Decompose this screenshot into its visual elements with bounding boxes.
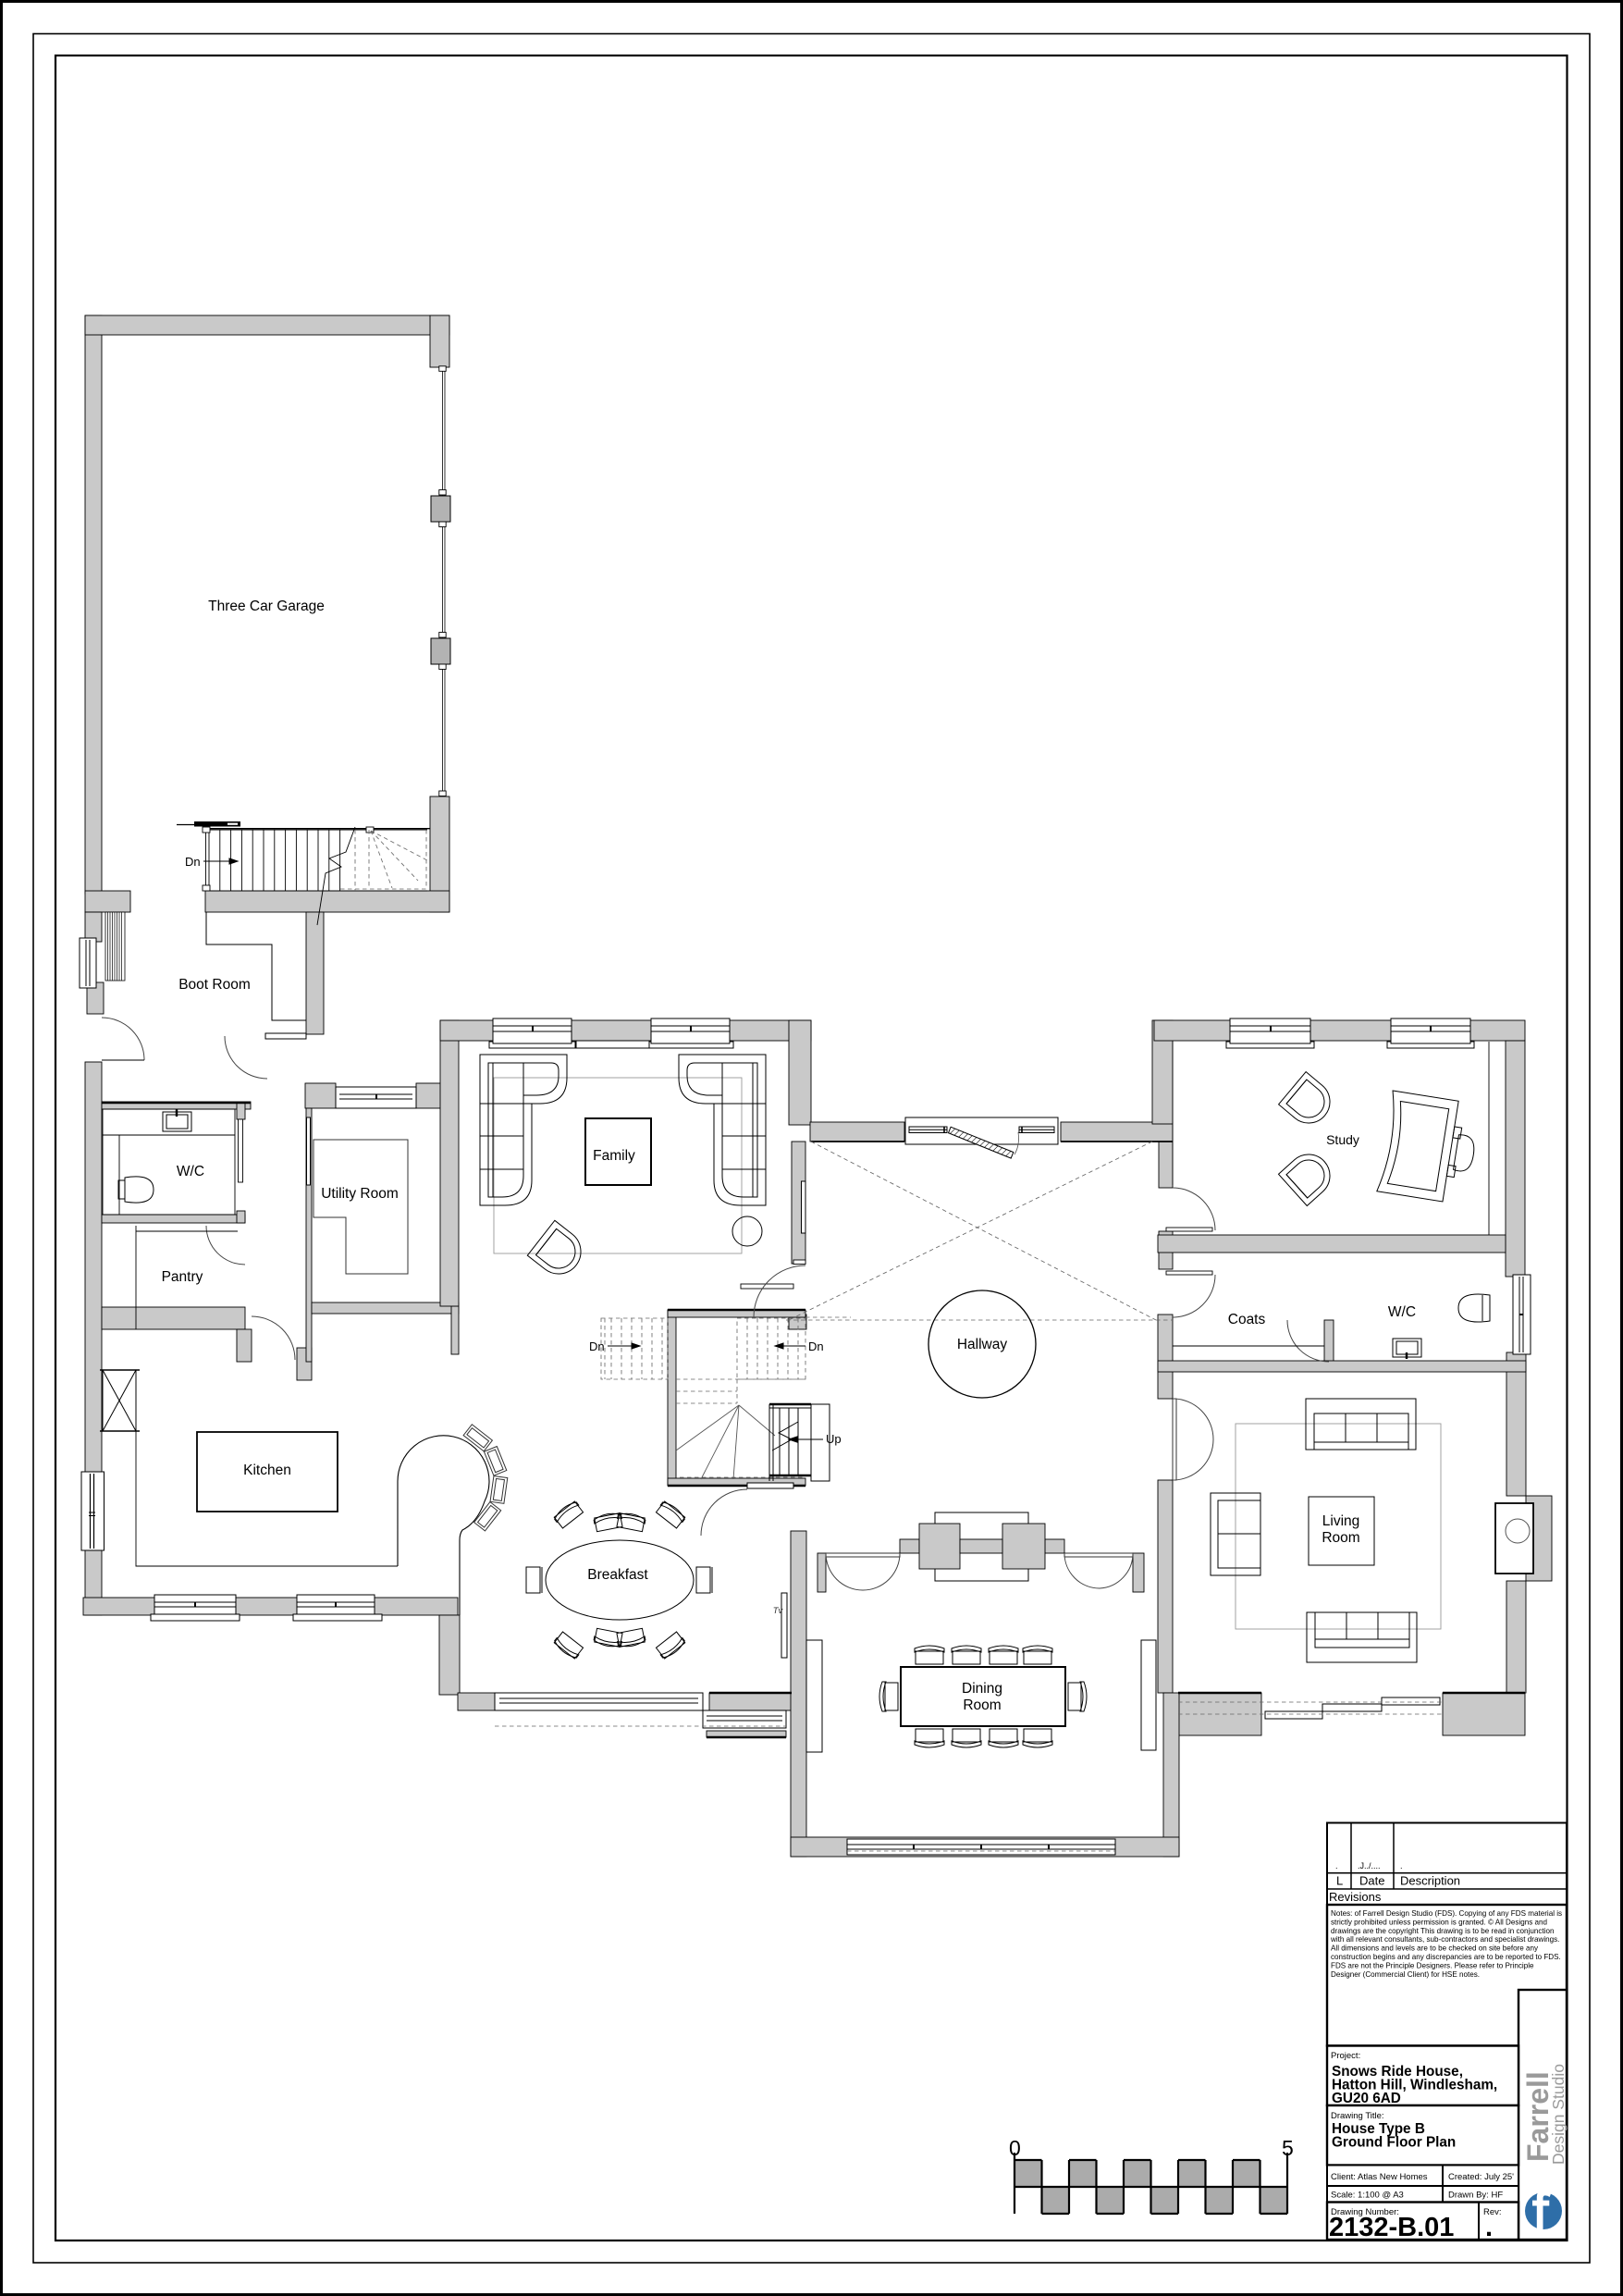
svg-text:FDS are not the Principle Desi: FDS are not the Principle Designers. Ple…	[1331, 1961, 1534, 1969]
svg-text:Ground Floor Plan: Ground Floor Plan	[1332, 2135, 1456, 2151]
svg-text:.: .	[1400, 1861, 1403, 1870]
svg-text:Room: Room	[963, 1697, 1001, 1713]
svg-text:Drawn By: HF: Drawn By: HF	[1448, 2191, 1503, 2201]
svg-text:Study: Study	[1326, 1132, 1359, 1147]
svg-text:Up: Up	[826, 1432, 842, 1446]
svg-text:Hallway: Hallway	[957, 1337, 1008, 1352]
svg-text:All dimensions and levels are: All dimensions and levels are to be chec…	[1331, 1944, 1539, 1953]
svg-text:Created: July 25': Created: July 25'	[1448, 2172, 1514, 2182]
svg-text:GU20 6AD: GU20 6AD	[1332, 2091, 1401, 2106]
svg-text:Dining: Dining	[962, 1681, 1002, 1697]
svg-text:Coats: Coats	[1228, 1312, 1266, 1327]
svg-text:Dn: Dn	[808, 1339, 824, 1353]
svg-text:Utility Room: Utility Room	[321, 1186, 399, 1202]
svg-text:W/C: W/C	[1388, 1304, 1416, 1320]
svg-text:L: L	[1336, 1874, 1343, 1888]
svg-text:Drawing Title:: Drawing Title:	[1331, 2111, 1384, 2121]
svg-text:Breakfast: Breakfast	[587, 1567, 648, 1583]
svg-text:Dn: Dn	[185, 855, 201, 869]
svg-text:.J../....: .J../....	[1358, 1861, 1381, 1870]
svg-text:Three Car Garage: Three Car Garage	[208, 599, 325, 614]
svg-text:Description: Description	[1400, 1874, 1460, 1888]
svg-text:.: .	[1485, 2213, 1493, 2242]
svg-text:Notes: of Farrell Design Studi: Notes: of Farrell Design Studio (FDS). C…	[1331, 1909, 1562, 1918]
svg-text:construction begins and any di: construction begins and any discrepancie…	[1331, 1953, 1561, 1961]
svg-text:drawings are the copyright Thi: drawings are the copyright This drawing …	[1331, 1927, 1554, 1935]
svg-text:Design Studio: Design Studio	[1549, 2064, 1568, 2165]
svg-text:Scale: 1:100 @ A3: Scale: 1:100 @ A3	[1331, 2191, 1404, 2201]
svg-text:Client: Atlas New Homes: Client: Atlas New Homes	[1331, 2172, 1428, 2182]
svg-text:W/C: W/C	[177, 1164, 204, 1179]
svg-text:Tv: Tv	[773, 1606, 784, 1616]
svg-text:Project:: Project:	[1331, 2051, 1360, 2061]
svg-text:.: .	[1335, 1861, 1338, 1870]
svg-text:Designer (Commercial Client) f: Designer (Commercial Client) for HSE not…	[1331, 1970, 1480, 1979]
svg-text:Revisions: Revisions	[1329, 1890, 1382, 1904]
svg-text:with all relevant consultants,: with all relevant consultants, sub-contr…	[1330, 1935, 1559, 1944]
svg-text:Dn: Dn	[589, 1339, 605, 1353]
svg-text:Pantry: Pantry	[162, 1269, 203, 1285]
svg-text:Living: Living	[1322, 1513, 1360, 1529]
svg-text:2132-B.01: 2132-B.01	[1329, 2213, 1454, 2242]
svg-text:Room: Room	[1322, 1530, 1359, 1546]
svg-text:Family: Family	[593, 1148, 635, 1164]
svg-text:strictly prohibited unless per: strictly prohibited unless permission is…	[1331, 1918, 1547, 1926]
svg-text:Date: Date	[1359, 1874, 1384, 1888]
svg-text:Boot Room: Boot Room	[178, 977, 251, 993]
svg-text:Kitchen: Kitchen	[243, 1463, 291, 1478]
